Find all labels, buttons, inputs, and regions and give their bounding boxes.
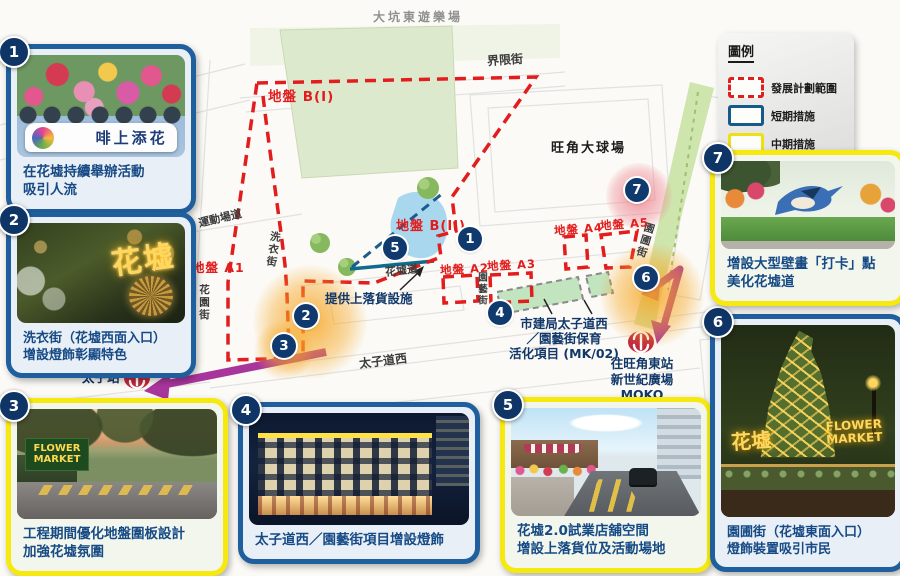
zebra-crossing [38,485,196,495]
flower-stalls [513,464,600,477]
road-label-yuen-ngai-street: 園藝街 [474,272,488,307]
legend-label: 短期措施 [771,108,815,124]
neon-sign-text: 花墟 [730,423,772,455]
label-mong-kok-east: 往旺角東站 新世紀廣場 MOKO [598,356,686,403]
road-label-boundary-street: 界限街 [486,50,523,69]
area-label-playground: 大坑東遊樂場 [373,8,463,25]
annotation-urban-renewal-line1: 市建局太子道西 [505,316,623,331]
map-marker-5: 5 [383,236,407,260]
legend-item-plan-boundary: 發展計劃範圍 [728,77,844,98]
event-logo-icon [32,127,54,149]
annotation-urban-renewal-line2: ／園藝街保育 [505,331,623,346]
site-label-a1: 地盤 A1 [192,257,245,276]
map-marker-6: 6 [634,266,658,290]
caption-line: 太子道西／園藝街項目增設燈飾 [255,532,463,550]
legend: 圖例 發展計劃範圍 短期措施 中期措施 [718,33,854,163]
map-marker-7: 7 [625,178,649,202]
area-label-stadium: 旺角大球場 [551,137,626,156]
urban-renewal-blocks [497,272,613,314]
car [629,468,657,485]
map-marker-2: 2 [294,304,318,328]
caption-line: 增設上落貨位及活動場地 [517,541,695,559]
annotation-urban-renewal: 市建局太子道西 ／園藝街保育 活化項目 (MK/02) [505,316,623,361]
mural-bird [773,177,847,219]
map-marker-4: 4 [488,301,512,325]
annotation-loading-facility: 提供上落貨設施 [325,291,413,307]
pavement [511,477,574,516]
callout-2-photo: 花墟 [17,223,185,323]
callout-7: 7 增設大型壁畫「打卡」點 美化花墟道 [710,150,900,306]
callout-2-caption: 洗衣街（花墟西面入口） 增設燈飾彰顯特色 [17,323,185,367]
callout-4-photo [249,413,469,525]
map-marker-3: 3 [272,334,296,358]
clouds [568,414,644,431]
legend-title: 圖例 [728,41,754,63]
footpath [721,241,895,249]
caption-line: 增設大型壁畫「打卡」點 [727,256,889,274]
callout-7-caption: 增設大型壁畫「打卡」點 美化花墟道 [721,249,895,295]
site-label-a4: 地盤 A4 [554,219,604,238]
road-label-fa-yuen-street: 花園街 [197,284,212,322]
caption-line: 洗衣街（花墟西面入口） [23,330,179,347]
legend-item-short-term: 短期措施 [728,105,844,126]
callout-6: 6 花墟 FLOWER MARKET 園圃街（花墟東面入口） 燈飾裝置吸引市民 [710,314,900,572]
callout-4-caption: 太子道西／園藝街項目增設燈飾 [249,525,469,553]
flower-market-sign: FLOWER MARKET [825,417,890,447]
background-tower [436,416,469,485]
caption-line: 美化花墟道 [727,274,889,292]
mtr-icon-mong-kok-east [628,331,654,353]
callout-7-photo [721,161,895,249]
callout-6-photo: 花墟 FLOWER MARKET [721,325,895,517]
callout-4-badge: 4 [230,394,262,426]
site-label-b2: 地盤 B(II) [396,215,466,234]
callout-5-caption: 花墟2.0試業店舖空間 增設上落貨位及活動場地 [511,516,701,562]
site-label-b1: 地盤 B(I) [268,85,334,105]
legend-swatch-red-dashed [728,77,764,98]
caption-line: 加強花墟氛圍 [23,544,211,562]
legend-swatch-blue [728,105,764,126]
event-sign-text: 啡上添花 [96,127,168,148]
lamp-glow [865,375,881,391]
road-label-flower-market-road: 花墟道 [384,260,418,279]
lit-shopfronts [258,496,432,515]
callout-7-badge: 7 [702,142,734,174]
callout-5-badge: 5 [492,389,524,421]
caption-line: 工程期間優化地盤圍板設計 [23,526,211,544]
caption-line: 在花墟持續舉辦活動 [23,164,179,182]
caption-line: 增設燈飾彰顯特色 [23,347,179,364]
caption-line: 園圃街（花墟東面入口） [727,524,889,541]
callout-4: 4 太子道西／園藝街項目增設燈飾 [238,402,480,564]
heritage-building [258,433,432,496]
callout-1-caption: 在花墟持續舉辦活動 吸引人流 [17,157,185,203]
site-label-a2: 地盤 A2 [440,260,490,279]
caption-line: 花墟2.0試業店舖空間 [517,523,695,541]
callout-3: 3 FLOWER MARKET 工程期間優化地盤圍板設計 加強花墟氛圍 [6,398,228,576]
neon-sign-text: 花墟 [108,231,178,283]
callout-2: 2 花墟 洗衣街（花墟西面入口） 增設燈飾彰顯特色 [6,212,196,378]
lantern-ball [129,276,173,316]
site-label-a3: 地盤 A3 [487,256,537,275]
striped-awning [524,444,581,454]
slide: 大坑東遊樂場 界限街 旺角大球場 運動場道 洗衣街 花園街 花墟道 太子道西 園… [0,0,900,576]
callout-6-badge: 6 [702,306,734,338]
planter-fence [721,464,895,517]
event-sign: 啡上添花 [25,123,176,152]
background-buildings [657,408,701,479]
callout-5-photo [511,408,701,516]
callout-6-caption: 園圃街（花墟東面入口） 燈飾裝置吸引市民 [721,517,895,561]
callout-1-photo: 啡上添花 [17,55,185,157]
caption-line: 吸引人流 [23,182,179,200]
callout-3-photo: FLOWER MARKET [17,409,217,519]
flower-market-sign: FLOWER MARKET [25,438,89,471]
callout-3-caption: 工程期間優化地盤圍板設計 加強花墟氛圍 [17,519,217,565]
caption-line: 燈飾裝置吸引市民 [727,541,889,558]
site-label-a5: 地盤 A5 [600,214,650,233]
grass [721,217,895,242]
map-marker-1: 1 [458,227,482,251]
label-mong-kok-east-line2: 新世紀廣場 [598,372,686,388]
callout-5: 5 花墟2.0試業店舖空間 增設上落貨位及活動場地 [500,397,712,573]
label-mong-kok-east-line1: 往旺角東站 [598,356,686,372]
callout-1: 1 啡上添花 在花墟持續舉辦活動 吸引人流 [6,44,196,214]
legend-label: 發展計劃範圍 [771,80,837,96]
